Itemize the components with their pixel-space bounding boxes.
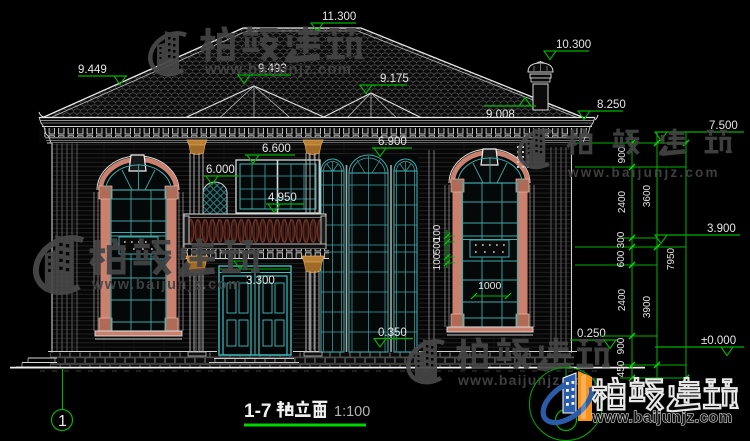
svg-text:900: 900 — [617, 146, 628, 163]
svg-text:6.900: 6.900 — [378, 136, 407, 148]
svg-text:4.950: 4.950 — [268, 192, 297, 204]
svg-text:0.350: 0.350 — [378, 327, 407, 339]
svg-text:±0.000: ±0.000 — [701, 335, 736, 347]
svg-text:1: 1 — [58, 413, 67, 430]
svg-text:3.900: 3.900 — [707, 223, 736, 235]
svg-text:7950: 7950 — [666, 247, 677, 270]
svg-text:1000: 1000 — [478, 280, 502, 292]
svg-text:900: 900 — [616, 337, 627, 354]
svg-text:300: 300 — [616, 231, 627, 248]
svg-text:450: 450 — [616, 360, 627, 377]
svg-text:11.300: 11.300 — [322, 11, 356, 23]
svg-text:0.250: 0.250 — [577, 328, 606, 340]
svg-text:www.baijunjz.com: www.baijunjz.com — [204, 61, 352, 78]
svg-text:3900: 3900 — [642, 295, 653, 318]
svg-text:8.250: 8.250 — [597, 99, 626, 111]
svg-text:3600: 3600 — [642, 184, 653, 207]
svg-text:2400: 2400 — [617, 190, 628, 213]
svg-text:6.000: 6.000 — [206, 164, 235, 176]
svg-text:600: 600 — [616, 250, 627, 267]
svg-text:www.baijunjz.com: www.baijunjz.com — [567, 165, 720, 180]
svg-text:2400: 2400 — [617, 288, 628, 311]
svg-text:1-7: 1-7 — [244, 401, 271, 422]
svg-text:9.449: 9.449 — [78, 64, 107, 76]
svg-text:6.600: 6.600 — [262, 143, 291, 155]
svg-text:1:100: 1:100 — [334, 404, 370, 420]
svg-text:9.175: 9.175 — [380, 73, 409, 85]
svg-text:www.baijunjz.com: www.baijunjz.com — [591, 409, 733, 426]
svg-text:3.300: 3.300 — [246, 275, 275, 287]
svg-text:www.baijunjz.com: www.baijunjz.com — [91, 277, 243, 293]
svg-text:www.baijunjz.com: www.baijunjz.com — [457, 372, 598, 388]
svg-text:100: 100 — [432, 253, 443, 270]
svg-text:500: 500 — [432, 237, 443, 254]
svg-text:10.300: 10.300 — [556, 39, 591, 51]
svg-text:9.008: 9.008 — [486, 109, 515, 121]
